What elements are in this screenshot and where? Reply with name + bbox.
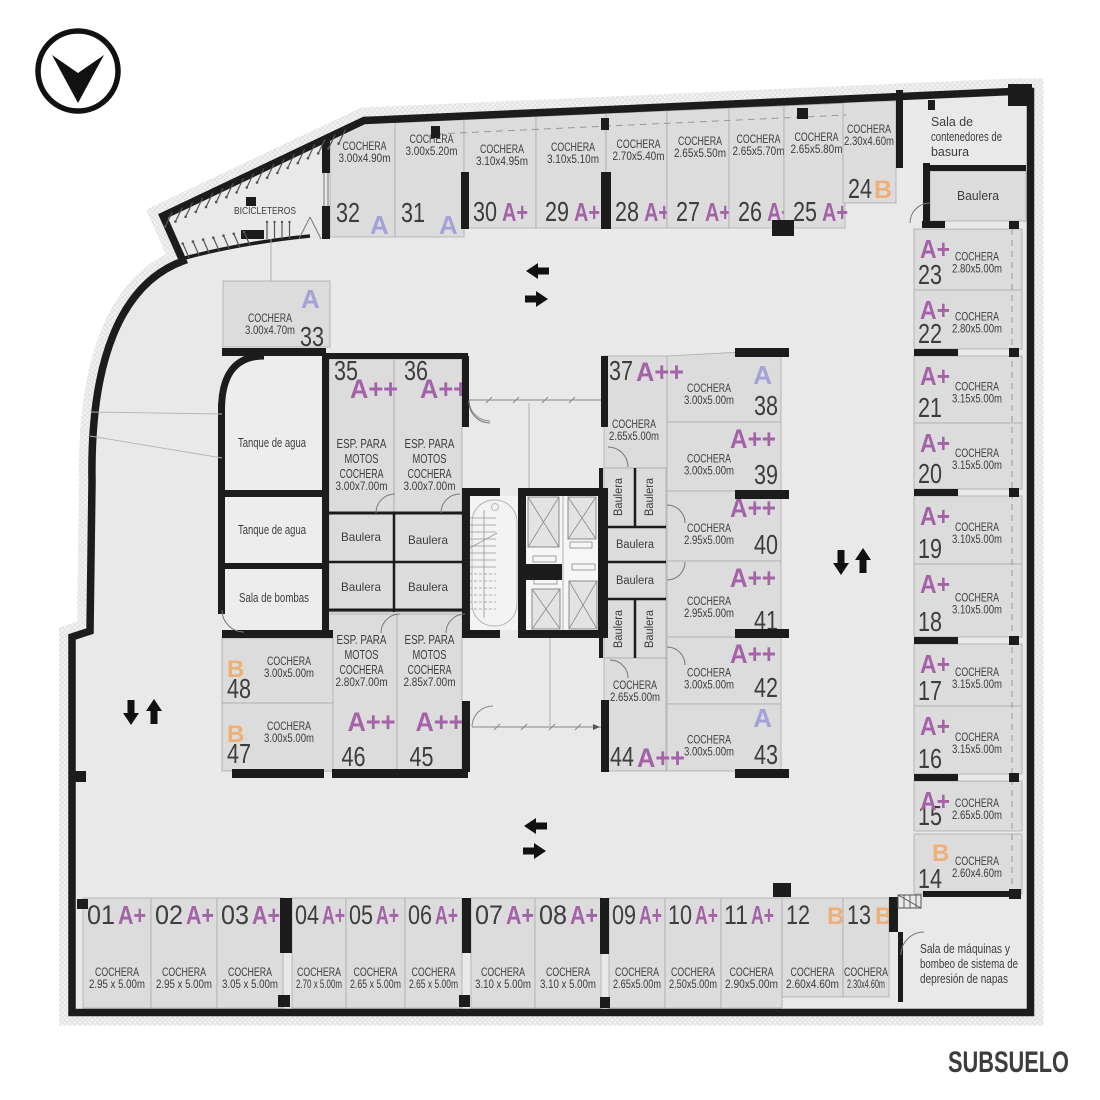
svg-text:3.10x5.00m: 3.10x5.00m	[952, 532, 1002, 546]
svg-text:A+: A+	[118, 900, 146, 930]
svg-text:Tanque de agua: Tanque de agua	[238, 522, 307, 537]
svg-text:2.80x5.00m: 2.80x5.00m	[952, 322, 1002, 336]
svg-text:07: 07	[475, 900, 503, 930]
svg-text:3.10 x 5.00m: 3.10 x 5.00m	[475, 977, 531, 991]
svg-text:A+: A+	[920, 234, 950, 264]
svg-text:2.60x4.60m: 2.60x4.60m	[952, 866, 1002, 880]
svg-text:A+: A+	[705, 197, 731, 227]
svg-text:A: A	[439, 210, 458, 240]
svg-text:3.10x5.10m: 3.10x5.10m	[547, 152, 599, 166]
svg-text:13: 13	[847, 900, 871, 930]
svg-text:Baulera: Baulera	[616, 539, 655, 551]
svg-text:2.65x5.00m: 2.65x5.00m	[952, 808, 1002, 822]
svg-text:10: 10	[668, 900, 692, 930]
svg-text:2.95x5.00m: 2.95x5.00m	[684, 606, 734, 620]
svg-text:B: B	[874, 176, 892, 204]
svg-text:A+: A+	[695, 900, 718, 930]
svg-text:A+: A+	[920, 649, 950, 679]
svg-text:A++: A++	[730, 639, 776, 669]
svg-text:ESP. PARA: ESP. PARA	[405, 633, 456, 647]
svg-text:3.05 x 5.00m: 3.05 x 5.00m	[222, 977, 278, 991]
svg-text:2.50x5.00m: 2.50x5.00m	[669, 977, 717, 991]
svg-text:3.15x5.00m: 3.15x5.00m	[952, 458, 1002, 472]
svg-text:3.00x7.00m: 3.00x7.00m	[404, 479, 456, 493]
svg-text:26: 26	[738, 196, 762, 227]
svg-text:21: 21	[918, 392, 942, 423]
svg-text:contenedores de: contenedores de	[931, 129, 1002, 144]
svg-text:ESP. PARA: ESP. PARA	[337, 437, 388, 451]
svg-text:2.85x7.00m: 2.85x7.00m	[404, 675, 456, 689]
svg-text:Baulera: Baulera	[644, 609, 656, 648]
svg-text:B: B	[827, 903, 844, 930]
svg-text:Baulera: Baulera	[341, 580, 381, 594]
svg-text:46: 46	[342, 741, 366, 772]
svg-text:32: 32	[336, 197, 360, 228]
svg-text:Baulera: Baulera	[408, 580, 448, 594]
svg-text:A+: A+	[920, 711, 950, 741]
svg-text:A+: A+	[751, 900, 774, 930]
svg-text:ESP. PARA: ESP. PARA	[337, 633, 388, 647]
svg-text:A++: A++	[416, 707, 464, 737]
svg-text:Baulera: Baulera	[616, 575, 655, 587]
svg-text:A+: A+	[435, 900, 458, 930]
svg-text:08: 08	[539, 900, 567, 930]
svg-text:SUBSUELO: SUBSUELO	[948, 1046, 1069, 1079]
svg-text:24: 24	[848, 173, 872, 204]
svg-text:Baulera: Baulera	[644, 477, 656, 516]
svg-text:3.15x5.00m: 3.15x5.00m	[952, 392, 1002, 406]
svg-text:A+: A+	[252, 900, 280, 930]
svg-text:Baulera: Baulera	[613, 609, 625, 648]
svg-text:Baulera: Baulera	[408, 533, 448, 547]
svg-text:MOTOS: MOTOS	[413, 452, 447, 466]
svg-text:12: 12	[786, 900, 810, 930]
svg-text:A: A	[370, 210, 389, 240]
svg-text:48: 48	[227, 673, 251, 704]
svg-text:3.00x5.00m: 3.00x5.00m	[264, 731, 314, 745]
svg-text:A+: A+	[639, 900, 662, 930]
svg-text:depresión de napas: depresión de napas	[920, 971, 1008, 986]
svg-text:2.65x5.00m: 2.65x5.00m	[610, 690, 660, 704]
svg-text:basura: basura	[931, 144, 970, 159]
svg-text:2.95x5.00m: 2.95x5.00m	[684, 533, 734, 547]
svg-text:14: 14	[918, 863, 942, 894]
svg-text:2.65x5.50m: 2.65x5.50m	[674, 146, 726, 160]
svg-text:30: 30	[473, 196, 497, 227]
svg-text:3.00x5.20m: 3.00x5.20m	[406, 144, 458, 158]
svg-text:A+: A+	[502, 197, 528, 227]
svg-text:01: 01	[87, 900, 115, 930]
svg-text:06: 06	[408, 900, 432, 930]
svg-text:03: 03	[221, 900, 249, 930]
svg-text:BICICLETEROS: BICICLETEROS	[234, 206, 296, 217]
svg-text:2.90x5.00m: 2.90x5.00m	[725, 977, 778, 991]
svg-text:3.00x5.00m: 3.00x5.00m	[684, 678, 734, 692]
svg-text:Sala de máquinas y: Sala de máquinas y	[920, 941, 1010, 956]
svg-text:20: 20	[918, 458, 942, 489]
svg-text:2.65x5.00m: 2.65x5.00m	[613, 977, 661, 991]
svg-text:A+: A+	[570, 900, 598, 930]
svg-text:3.10x4.95m: 3.10x4.95m	[476, 154, 528, 168]
svg-text:2.65x5.00m: 2.65x5.00m	[609, 429, 659, 443]
svg-text:A+: A+	[920, 295, 950, 325]
svg-text:A++: A++	[637, 743, 685, 773]
svg-text:Sala de bombas: Sala de bombas	[239, 590, 309, 605]
svg-text:A++: A++	[420, 374, 468, 404]
svg-text:37: 37	[609, 355, 633, 386]
svg-text:42: 42	[754, 672, 778, 703]
svg-text:Baulera: Baulera	[957, 189, 999, 203]
svg-text:44: 44	[610, 741, 634, 772]
svg-text:3.00x4.90m: 3.00x4.90m	[339, 151, 391, 165]
svg-text:17: 17	[918, 675, 942, 706]
svg-text:2.70x5.40m: 2.70x5.40m	[613, 149, 665, 163]
svg-text:27: 27	[676, 196, 700, 227]
svg-text:A++: A++	[350, 374, 398, 404]
svg-text:02: 02	[155, 900, 183, 930]
svg-text:3.00x5.00m: 3.00x5.00m	[684, 393, 734, 407]
svg-text:A+: A+	[376, 900, 399, 930]
svg-text:A+: A+	[920, 786, 950, 816]
svg-text:Baulera: Baulera	[341, 530, 381, 544]
svg-text:Tanque de agua: Tanque de agua	[238, 435, 307, 450]
svg-text:A: A	[301, 284, 320, 314]
svg-text:A+: A+	[506, 900, 534, 930]
svg-text:3.15x5.00m: 3.15x5.00m	[952, 742, 1002, 756]
svg-text:Baulera: Baulera	[613, 477, 625, 516]
svg-text:45: 45	[410, 741, 434, 772]
svg-text:38: 38	[754, 390, 778, 421]
svg-text:A++: A++	[348, 707, 396, 737]
svg-text:A+: A+	[574, 197, 600, 227]
svg-text:A+: A+	[920, 361, 950, 391]
svg-text:2.60x4.60m: 2.60x4.60m	[786, 977, 839, 991]
svg-text:11: 11	[724, 900, 748, 930]
svg-text:47: 47	[227, 738, 251, 769]
svg-text:MOTOS: MOTOS	[413, 648, 447, 662]
svg-text:33: 33	[300, 321, 324, 352]
svg-text:A: A	[753, 703, 772, 733]
svg-text:MOTOS: MOTOS	[345, 452, 379, 466]
svg-text:A: A	[753, 360, 772, 390]
svg-text:28: 28	[615, 196, 639, 227]
svg-text:3.00x5.00m: 3.00x5.00m	[264, 666, 314, 680]
svg-text:B: B	[932, 840, 949, 867]
svg-text:MOTOS: MOTOS	[345, 648, 379, 662]
svg-text:A++: A++	[636, 357, 684, 387]
svg-text:2.65 x 5.00m: 2.65 x 5.00m	[409, 977, 458, 991]
svg-text:3.00x4.70m: 3.00x4.70m	[245, 323, 295, 337]
svg-text:2.65x5.80m: 2.65x5.80m	[791, 142, 843, 156]
svg-text:39: 39	[754, 459, 778, 490]
svg-text:3.00x5.00m: 3.00x5.00m	[684, 464, 734, 478]
svg-text:3.10x5.00m: 3.10x5.00m	[952, 603, 1002, 617]
svg-text:2.95 x 5.00m: 2.95 x 5.00m	[89, 977, 145, 991]
svg-text:2.80x7.00m: 2.80x7.00m	[336, 675, 388, 689]
svg-text:09: 09	[612, 900, 636, 930]
svg-text:31: 31	[401, 197, 425, 228]
svg-text:A+: A+	[920, 501, 950, 531]
svg-text:A+: A+	[920, 569, 950, 599]
svg-text:A++: A++	[730, 563, 776, 593]
svg-text:3.10 x 5.00m: 3.10 x 5.00m	[540, 977, 596, 991]
svg-text:3.00x7.00m: 3.00x7.00m	[336, 479, 388, 493]
svg-text:Sala de: Sala de	[931, 114, 973, 129]
svg-text:ESP. PARA: ESP. PARA	[405, 437, 456, 451]
svg-text:3.15x5.00m: 3.15x5.00m	[952, 677, 1002, 691]
svg-text:29: 29	[545, 196, 569, 227]
svg-text:19: 19	[918, 533, 942, 564]
svg-text:05: 05	[349, 900, 373, 930]
svg-text:A+: A+	[920, 428, 950, 458]
svg-text:2.30x4.60m: 2.30x4.60m	[844, 134, 894, 148]
svg-text:2.30x4.60m: 2.30x4.60m	[847, 977, 885, 991]
svg-text:2.65x5.70m: 2.65x5.70m	[733, 144, 785, 158]
svg-text:04: 04	[295, 900, 319, 930]
svg-text:A+: A+	[644, 197, 670, 227]
svg-text:A++: A++	[730, 424, 776, 454]
svg-text:16: 16	[918, 743, 942, 774]
svg-text:bombeo de sistema de: bombeo de sistema de	[920, 956, 1018, 971]
svg-text:A+: A+	[186, 900, 214, 930]
svg-text:A+: A+	[322, 900, 345, 930]
svg-text:2.70 x 5.00m: 2.70 x 5.00m	[296, 977, 342, 991]
svg-text:40: 40	[754, 529, 778, 560]
svg-text:25: 25	[793, 196, 817, 227]
svg-text:2.80x5.00m: 2.80x5.00m	[952, 262, 1002, 276]
svg-text:2.95 x 5.00m: 2.95 x 5.00m	[156, 977, 212, 991]
svg-text:2.65 x 5.00m: 2.65 x 5.00m	[350, 977, 401, 991]
svg-text:18: 18	[918, 606, 942, 637]
svg-text:3.00x5.00m: 3.00x5.00m	[684, 745, 734, 759]
svg-text:43: 43	[754, 739, 778, 770]
